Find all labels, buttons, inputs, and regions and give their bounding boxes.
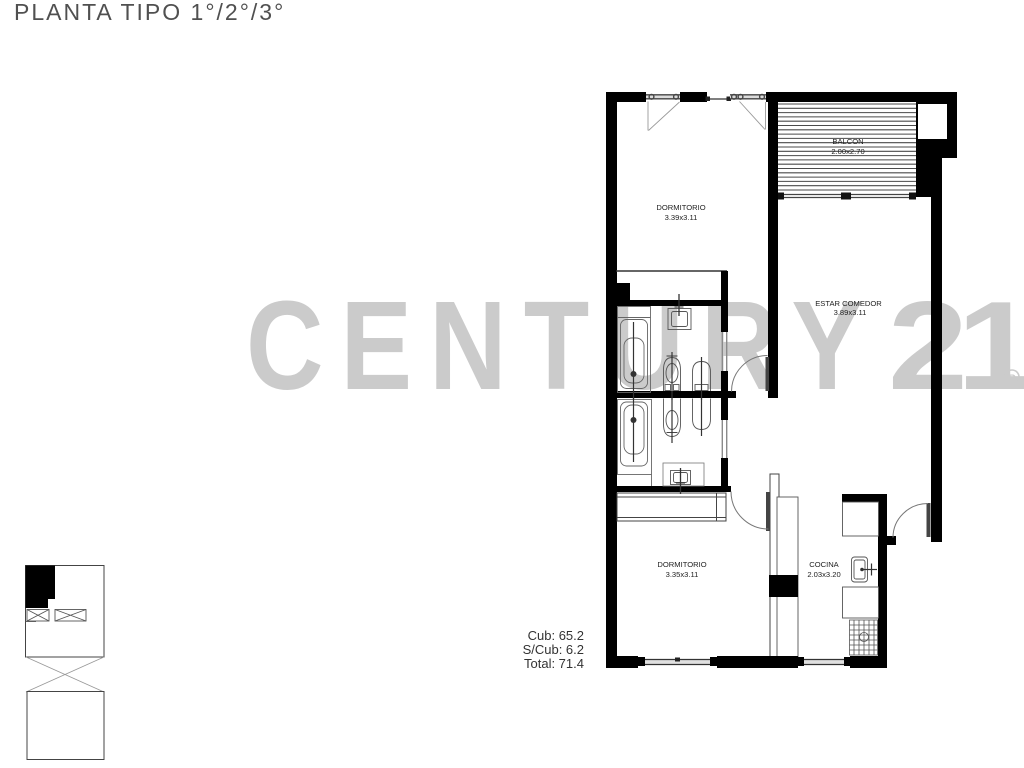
svg-text:PLANTA TIPO 1°/2°/3°: PLANTA TIPO 1°/2°/3°	[14, 0, 285, 25]
svg-text:3.89x3.11: 3.89x3.11	[834, 308, 867, 317]
svg-text:Total: 71.4: Total: 71.4	[524, 656, 584, 671]
svg-text:DORMITORIO: DORMITORIO	[657, 560, 706, 569]
svg-text:2: 2	[888, 275, 968, 416]
svg-text:CENTURY: CENTURY	[246, 275, 880, 416]
svg-text:BALCON: BALCON	[832, 137, 863, 146]
svg-text:2.03x3.20: 2.03x3.20	[807, 570, 840, 579]
svg-text:ESTAR COMEDOR: ESTAR COMEDOR	[815, 299, 882, 308]
svg-text:S/Cub: 6.2: S/Cub: 6.2	[523, 642, 584, 657]
svg-text:1: 1	[957, 275, 1024, 416]
svg-text:3.39x3.11: 3.39x3.11	[665, 213, 698, 222]
svg-text:COCINA: COCINA	[809, 560, 839, 569]
svg-text:R: R	[1008, 373, 1016, 385]
svg-text:2.00x2.70: 2.00x2.70	[831, 147, 864, 156]
svg-text:Cub: 65.2: Cub: 65.2	[528, 628, 584, 643]
svg-text:DORMITORIO: DORMITORIO	[656, 203, 705, 212]
svg-text:3.35x3.11: 3.35x3.11	[666, 570, 699, 579]
